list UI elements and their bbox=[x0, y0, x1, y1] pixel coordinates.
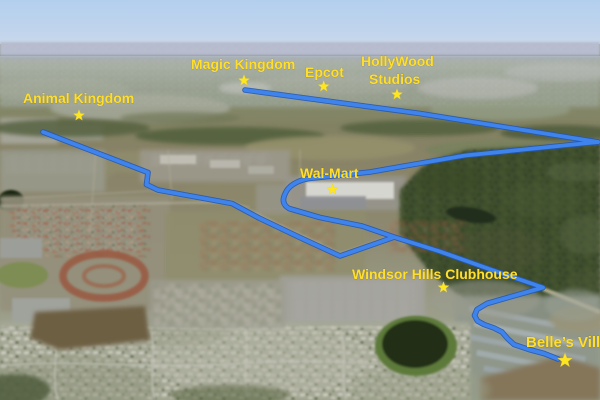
svg-text:Epcot: Epcot bbox=[305, 64, 344, 80]
svg-text:Animal Kingdom: Animal Kingdom bbox=[23, 90, 134, 106]
svg-text:Windsor Hills Clubhouse: Windsor Hills Clubhouse bbox=[352, 266, 518, 282]
svg-text:HollyWood: HollyWood bbox=[361, 53, 434, 69]
svg-text:Belle’s Villa: Belle’s Villa bbox=[526, 334, 600, 351]
svg-text:Magic Kingdom: Magic Kingdom bbox=[191, 56, 295, 72]
svg-text:Wal-Mart: Wal-Mart bbox=[300, 165, 359, 181]
svg-text:Studios: Studios bbox=[369, 71, 421, 87]
